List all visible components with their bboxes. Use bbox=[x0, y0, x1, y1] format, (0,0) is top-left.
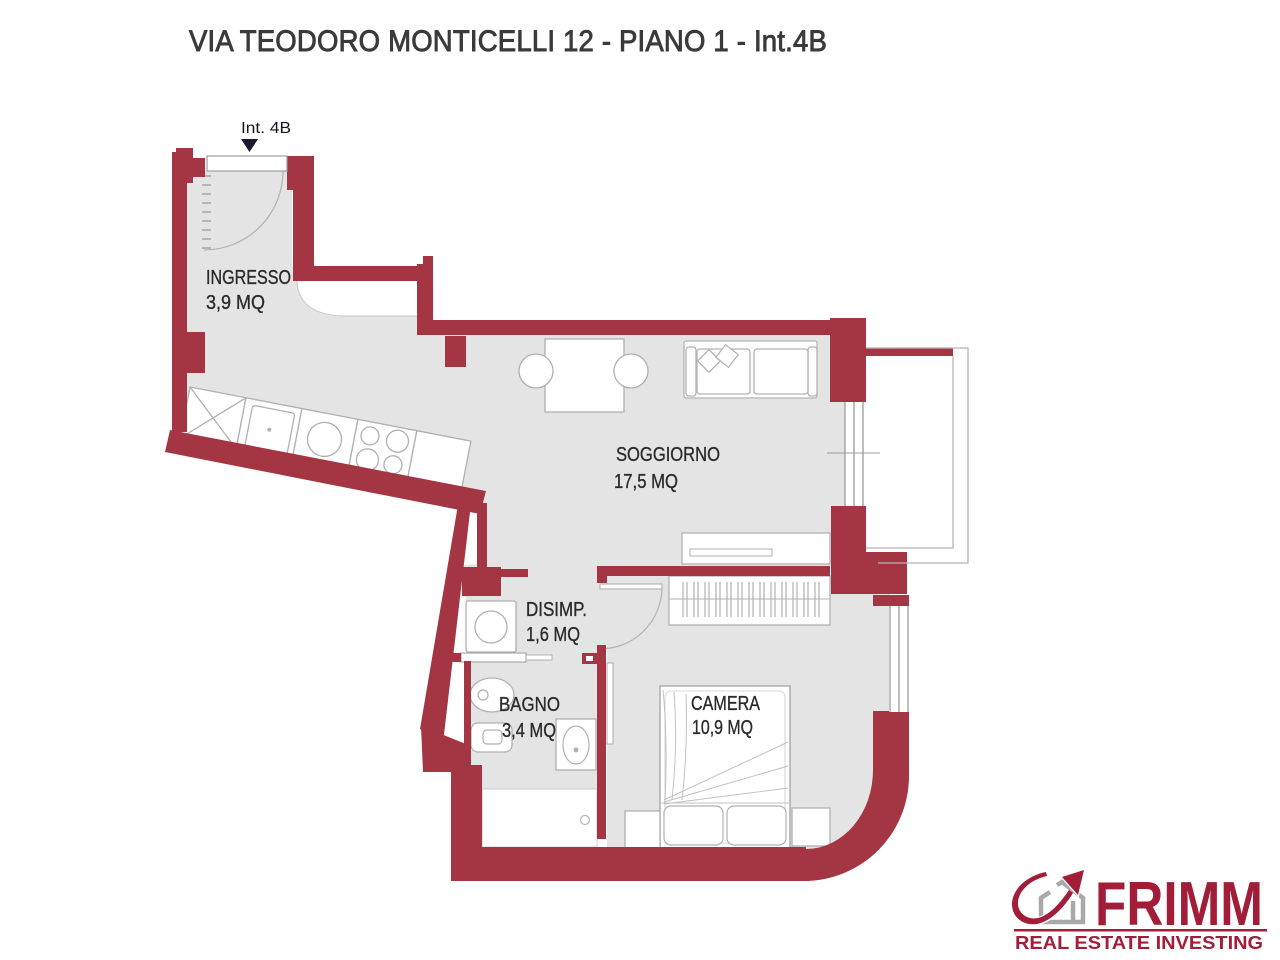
svg-text:FRIMM: FRIMM bbox=[1095, 870, 1263, 939]
svg-text:CAMERA: CAMERA bbox=[691, 692, 760, 715]
svg-text:REAL ESTATE INVESTING: REAL ESTATE INVESTING bbox=[1015, 933, 1263, 953]
svg-text:10,9 MQ: 10,9 MQ bbox=[692, 716, 753, 739]
svg-text:BAGNO: BAGNO bbox=[499, 693, 560, 716]
svg-text:INGRESSO: INGRESSO bbox=[206, 266, 291, 289]
svg-text:SOGGIORNO: SOGGIORNO bbox=[616, 443, 720, 466]
svg-text:Int. 4B: Int. 4B bbox=[241, 120, 291, 137]
svg-text:VIA TEODORO MONTICELLI 12 - PI: VIA TEODORO MONTICELLI 12 - PIANO 1 - In… bbox=[189, 25, 827, 58]
svg-text:17,5 MQ: 17,5 MQ bbox=[614, 470, 678, 493]
svg-text:3,4 MQ: 3,4 MQ bbox=[502, 719, 556, 742]
svg-text:3,9 MQ: 3,9 MQ bbox=[206, 291, 265, 314]
svg-text:DISIMP.: DISIMP. bbox=[526, 598, 587, 621]
svg-text:1,6 MQ: 1,6 MQ bbox=[526, 623, 580, 646]
